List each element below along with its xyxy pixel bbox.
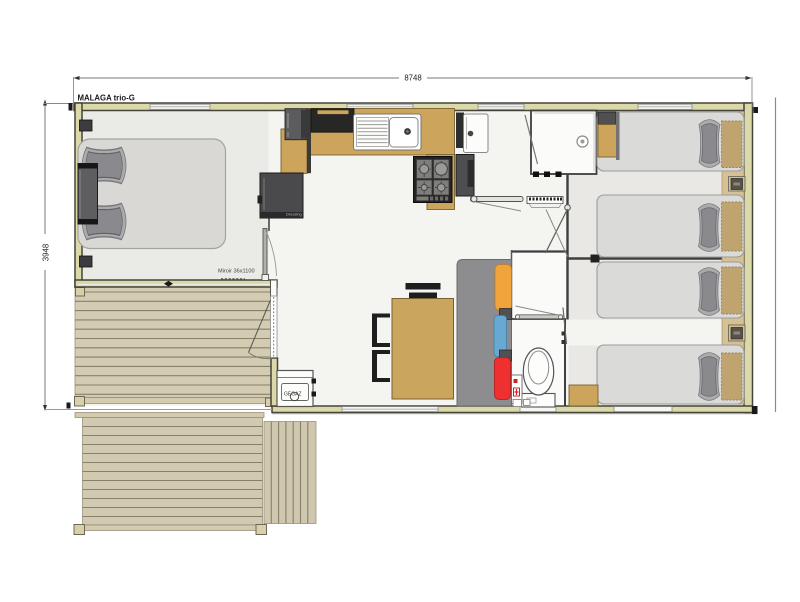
svg-text:3948: 3948 [42,244,51,261]
svg-text:MALAGA trio-G: MALAGA trio-G [78,94,135,103]
svg-text:8748: 8748 [404,74,421,83]
svg-text:Dressing: Dressing [286,212,302,217]
svg-text:Miroir 36x1100: Miroir 36x1100 [218,269,255,275]
